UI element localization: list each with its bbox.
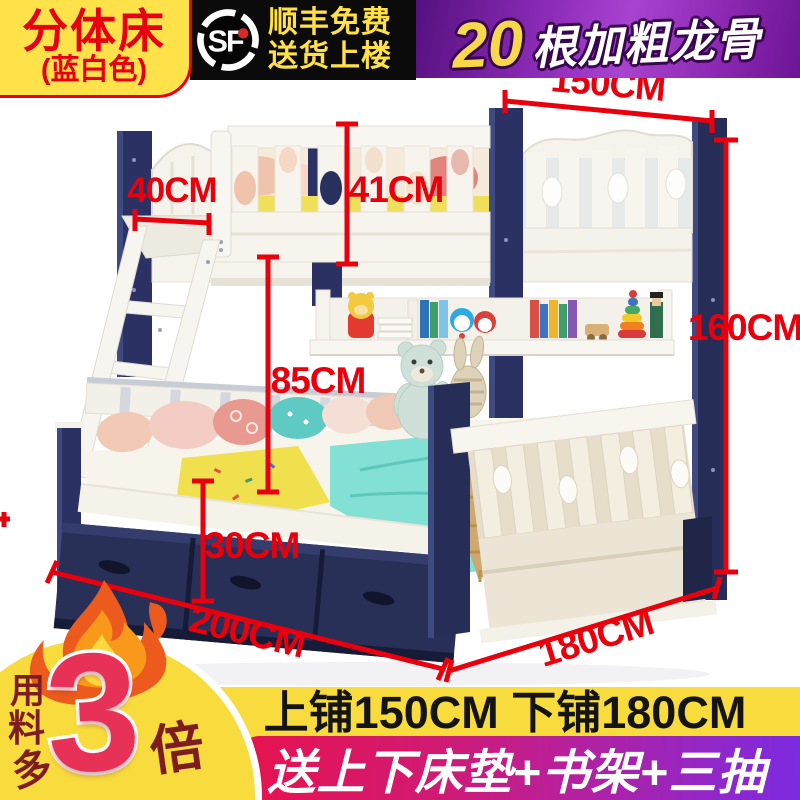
- center-post: [489, 108, 523, 418]
- sf-express-logo-icon: SF: [190, 2, 266, 78]
- dim-entry-width-label: 40CM: [127, 171, 216, 211]
- promo-multiplier-unit: 倍: [147, 719, 208, 780]
- dim-drawer-label: 30CM: [205, 525, 300, 567]
- size-summary-text: 上铺150CM 下铺180CM: [230, 687, 780, 737]
- product-badge-subtitle: (蓝白色): [41, 55, 147, 85]
- gift-banner-text: 送上下床垫+书架+三抽: [267, 733, 766, 800]
- dim-clearance-label: 85CM: [271, 360, 366, 402]
- product-badge-title: 分体床: [22, 8, 166, 55]
- feature-number: 20: [451, 11, 525, 78]
- dim-total-height-label: 160CM: [688, 307, 800, 349]
- promo-usage-char-2: 料: [8, 710, 45, 747]
- product-badge: 分体床 (蓝白色): [0, 0, 192, 98]
- promo-multiplier: 3: [42, 626, 144, 799]
- shipping-line-2: 送货上楼: [268, 40, 392, 75]
- promo-usage-char-1: 用: [10, 674, 45, 709]
- feature-text: 根加粗龙骨: [531, 16, 763, 71]
- upper-headboard: [523, 130, 692, 282]
- bookshelf: [310, 290, 674, 355]
- product-ad-image: 150CM 40CM 41CM 160CM 85CM 30CM 200CM 18…: [0, 0, 800, 800]
- gift-banner: 送上下床垫+书架+三抽: [234, 736, 800, 800]
- shipping-line-1: 顺丰免费: [268, 6, 392, 41]
- svg-text:SF: SF: [208, 24, 244, 58]
- shipping-banner: SF 顺丰免费 送货上楼: [190, 0, 416, 80]
- dim-guardrail-label: 41CM: [349, 169, 444, 211]
- feature-banner: 20 根加粗龙骨: [414, 0, 800, 78]
